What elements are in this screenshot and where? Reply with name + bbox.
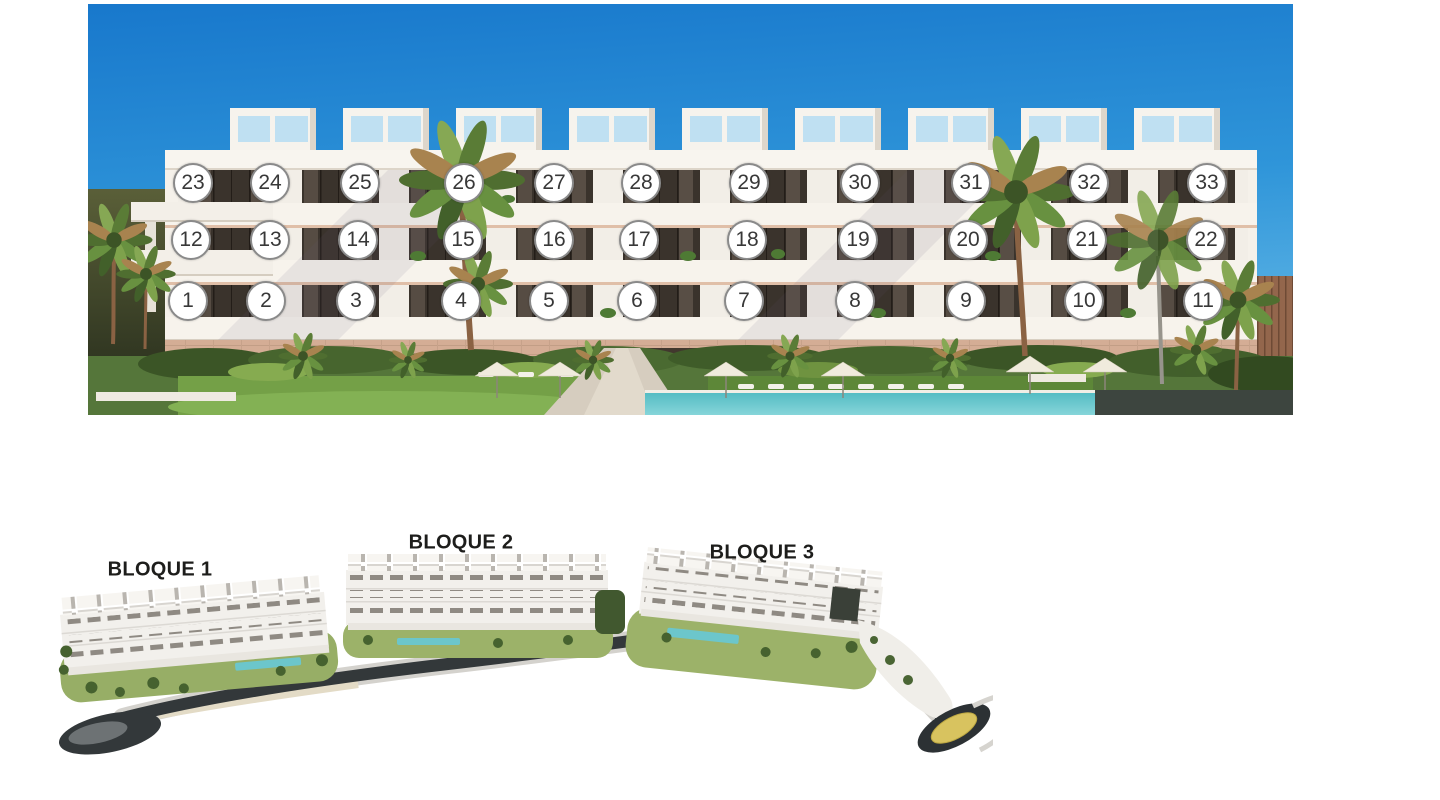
unit-marker-20[interactable]: 20: [948, 220, 988, 260]
unit-marker-28[interactable]: 28: [621, 163, 661, 203]
block-3-label: BLOQUE 3: [710, 542, 815, 565]
unit-marker-24[interactable]: 24: [250, 163, 290, 203]
unit-marker-10[interactable]: 10: [1064, 281, 1104, 321]
unit-marker-16[interactable]: 16: [534, 220, 574, 260]
block-2: [343, 554, 625, 658]
unit-marker-8[interactable]: 8: [835, 281, 875, 321]
unit-marker-9[interactable]: 9: [946, 281, 986, 321]
unit-marker-32[interactable]: 32: [1069, 163, 1109, 203]
unit-marker-18[interactable]: 18: [727, 220, 767, 260]
block-1-label: BLOQUE 1: [108, 559, 213, 582]
unit-marker-25[interactable]: 25: [340, 163, 380, 203]
unit-marker-3[interactable]: 3: [336, 281, 376, 321]
swimming-pool: [645, 393, 1095, 415]
unit-marker-33[interactable]: 33: [1187, 163, 1227, 203]
block-3: [623, 546, 886, 692]
block-2-label: BLOQUE 2: [409, 532, 514, 555]
front-photo-illustration: [88, 4, 1293, 415]
pool-block2: [397, 638, 460, 645]
unit-marker-11[interactable]: 11: [1183, 281, 1223, 321]
unit-marker-31[interactable]: 31: [951, 163, 991, 203]
unit-marker-15[interactable]: 15: [443, 220, 483, 260]
unit-marker-1[interactable]: 1: [168, 281, 208, 321]
building-front-photo: [88, 4, 1293, 415]
unit-marker-13[interactable]: 13: [250, 220, 290, 260]
unit-marker-14[interactable]: 14: [338, 220, 378, 260]
unit-marker-7[interactable]: 7: [724, 281, 764, 321]
unit-marker-4[interactable]: 4: [441, 281, 481, 321]
unit-marker-22[interactable]: 22: [1186, 220, 1226, 260]
unit-marker-26[interactable]: 26: [444, 163, 484, 203]
unit-marker-5[interactable]: 5: [529, 281, 569, 321]
roof-pergolas: [230, 108, 1220, 150]
unit-marker-17[interactable]: 17: [619, 220, 659, 260]
unit-marker-27[interactable]: 27: [534, 163, 574, 203]
unit-marker-23[interactable]: 23: [173, 163, 213, 203]
unit-marker-12[interactable]: 12: [171, 220, 211, 260]
unit-marker-21[interactable]: 21: [1067, 220, 1107, 260]
pool-coping: [645, 390, 1095, 393]
planter-wall: [96, 392, 236, 401]
unit-marker-30[interactable]: 30: [840, 163, 880, 203]
unit-marker-19[interactable]: 19: [838, 220, 878, 260]
unit-marker-29[interactable]: 29: [729, 163, 769, 203]
unit-marker-2[interactable]: 2: [246, 281, 286, 321]
unit-marker-6[interactable]: 6: [617, 281, 657, 321]
dark-panel: [1095, 390, 1293, 415]
planter-wall: [1028, 374, 1086, 382]
